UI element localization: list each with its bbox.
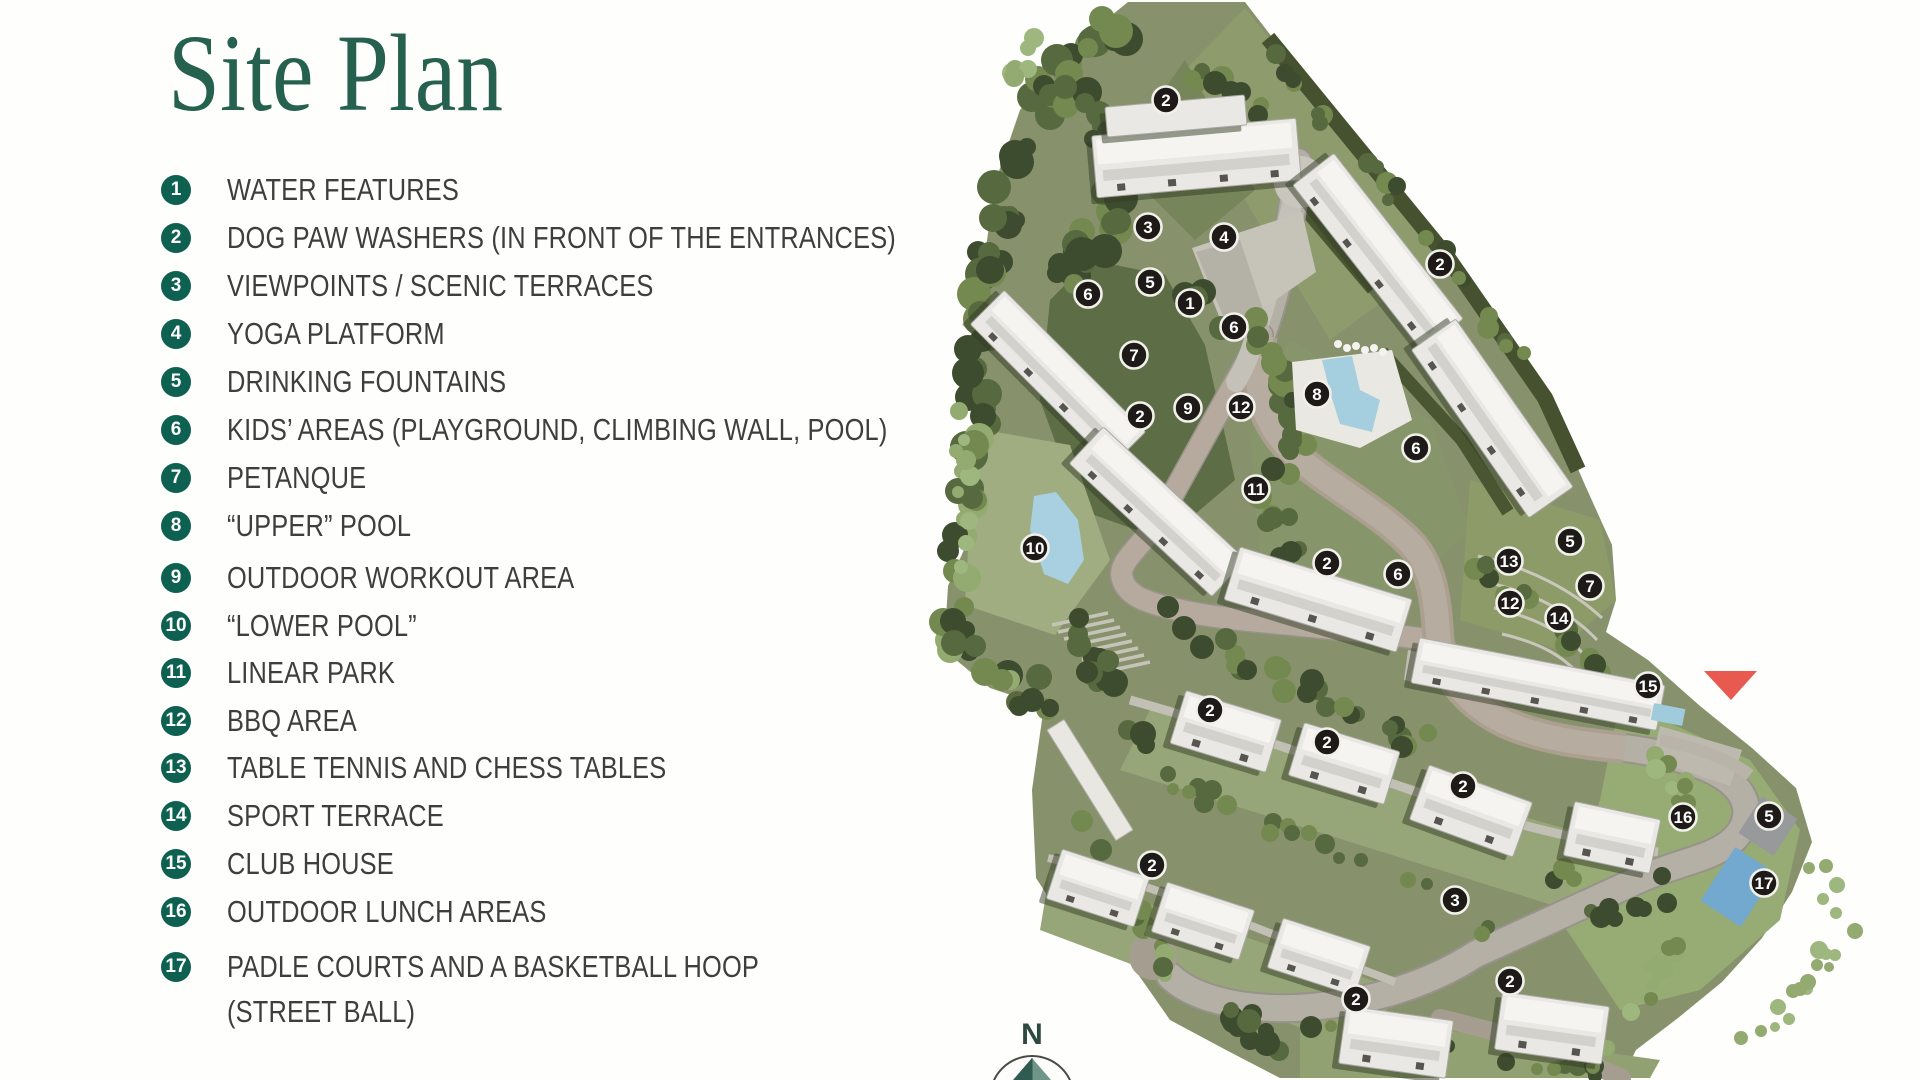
svg-text:7: 7	[1585, 577, 1594, 596]
svg-text:14: 14	[1550, 609, 1569, 628]
svg-text:3: 3	[1143, 218, 1152, 237]
svg-text:17: 17	[1755, 874, 1774, 893]
svg-text:4: 4	[1219, 228, 1229, 247]
svg-text:5: 5	[1764, 807, 1773, 826]
svg-text:3: 3	[1450, 891, 1459, 910]
svg-text:2: 2	[1322, 554, 1331, 573]
svg-text:13: 13	[1500, 552, 1519, 571]
svg-text:2: 2	[1435, 255, 1444, 274]
svg-text:2: 2	[1351, 990, 1360, 1009]
svg-text:2: 2	[1161, 91, 1170, 110]
svg-text:15: 15	[1639, 677, 1658, 696]
svg-text:16: 16	[1674, 808, 1693, 827]
svg-text:1: 1	[1185, 294, 1194, 313]
svg-text:10: 10	[1026, 539, 1045, 558]
svg-text:2: 2	[1322, 733, 1331, 752]
svg-text:9: 9	[1183, 399, 1192, 418]
svg-text:12: 12	[1501, 594, 1520, 613]
svg-text:2: 2	[1147, 856, 1156, 875]
svg-text:12: 12	[1232, 398, 1251, 417]
svg-text:2: 2	[1135, 407, 1144, 426]
svg-text:2: 2	[1205, 701, 1214, 720]
svg-text:6: 6	[1411, 439, 1420, 458]
svg-text:6: 6	[1393, 565, 1402, 584]
svg-text:7: 7	[1129, 346, 1138, 365]
svg-text:2: 2	[1505, 972, 1514, 991]
svg-text:5: 5	[1145, 273, 1154, 292]
svg-text:6: 6	[1083, 285, 1092, 304]
svg-text:2: 2	[1458, 777, 1467, 796]
svg-text:11: 11	[1247, 480, 1265, 499]
svg-text:5: 5	[1565, 532, 1574, 551]
svg-text:8: 8	[1312, 385, 1321, 404]
svg-text:N: N	[1021, 1018, 1043, 1051]
svg-text:6: 6	[1229, 318, 1238, 337]
